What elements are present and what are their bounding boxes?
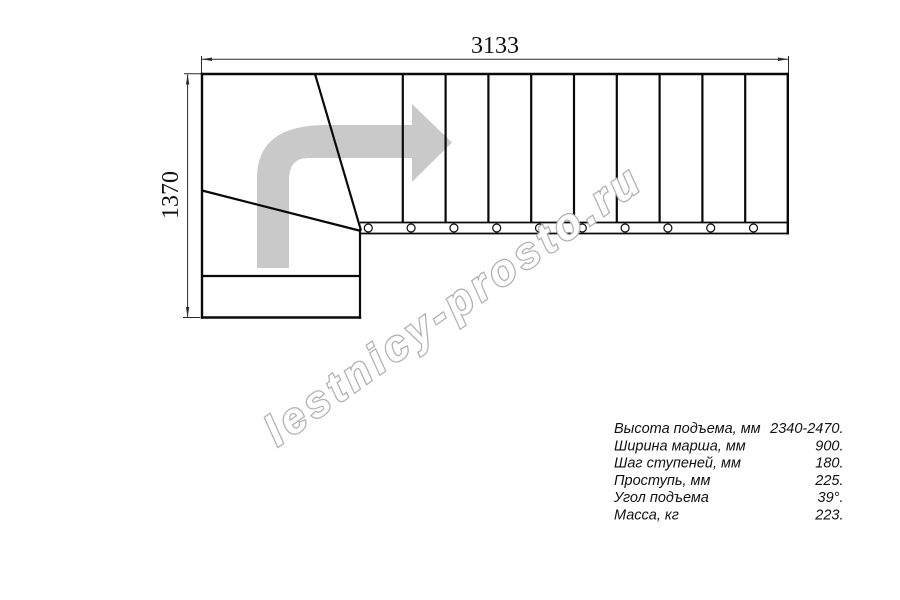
svg-text:Проступь, мм: Проступь, мм [614, 473, 710, 489]
svg-text:225.: 225. [814, 473, 843, 489]
svg-text:900.: 900. [815, 438, 843, 454]
svg-text:39°.: 39°. [818, 490, 844, 506]
svg-text:223.: 223. [814, 508, 843, 524]
svg-text:1370: 1370 [158, 171, 184, 219]
svg-text:Высота подъема, мм: Высота подъема, мм [614, 421, 761, 437]
svg-text:Угол подъема: Угол подъема [613, 490, 709, 506]
svg-text:180.: 180. [815, 456, 843, 472]
svg-text:Масса, кг: Масса, кг [614, 508, 679, 524]
svg-text:2340-2470.: 2340-2470. [769, 421, 843, 437]
svg-text:Ширина марша, мм: Ширина марша, мм [614, 438, 746, 454]
svg-text:Шаг ступеней, мм: Шаг ступеней, мм [614, 456, 741, 472]
svg-text:3133: 3133 [471, 33, 519, 59]
